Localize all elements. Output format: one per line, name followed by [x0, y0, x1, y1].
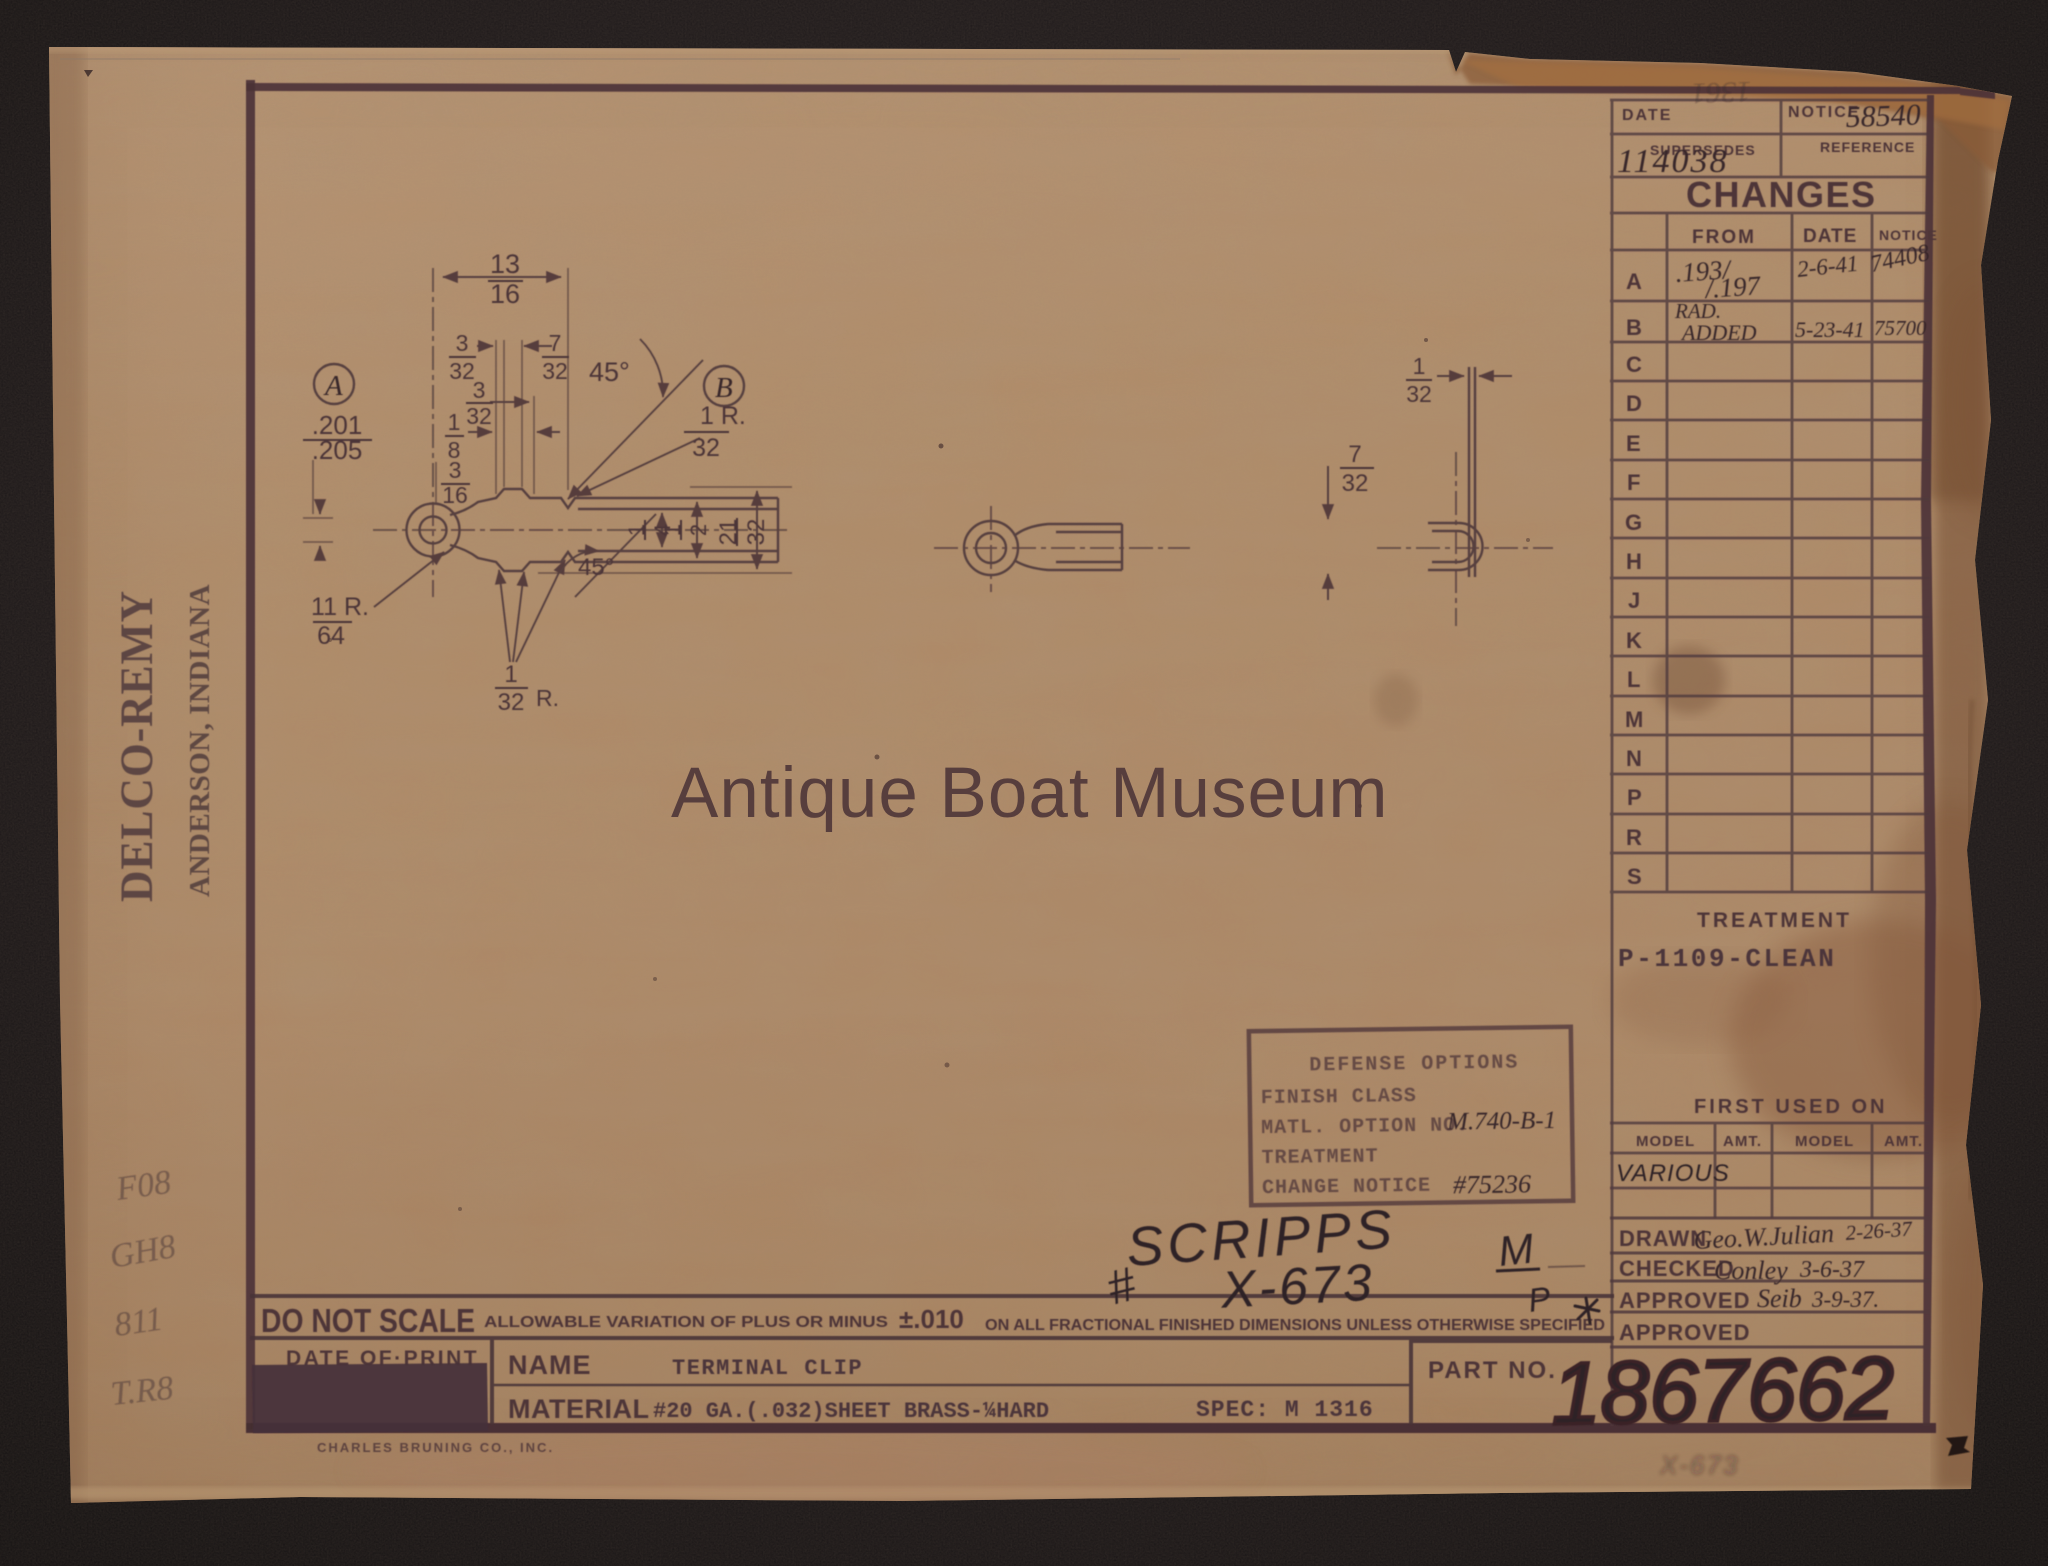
svg-text:ON ALL FRACTIONAL FINISHED DIM: ON ALL FRACTIONAL FINISHED DIMENSIONS UN… — [985, 1317, 1605, 1334]
svg-text:7: 7 — [1348, 441, 1361, 468]
svg-text:REFERENCE: REFERENCE — [1820, 139, 1915, 155]
svg-text:X-673: X-673 — [1219, 1254, 1377, 1320]
svg-text:2: 2 — [686, 524, 711, 536]
svg-text:ADDED: ADDED — [1680, 320, 1757, 345]
svg-text:DELCO-REMY: DELCO-REMY — [111, 590, 163, 902]
svg-text:3: 3 — [473, 377, 486, 403]
svg-text:58540: 58540 — [1845, 98, 1921, 134]
svg-text:ALLOWABLE VARIATION OF PLUS OR: ALLOWABLE VARIATION OF PLUS OR MINUS — [484, 1314, 888, 1331]
svg-text:DATE: DATE — [1803, 226, 1857, 247]
svg-text:J: J — [1628, 588, 1640, 613]
svg-text:32: 32 — [498, 689, 525, 716]
svg-text:2-26-37: 2-26-37 — [1845, 1216, 1914, 1245]
svg-text:32: 32 — [1342, 470, 1369, 497]
svg-text:M: M — [1625, 707, 1643, 732]
svg-text:MATERIAL: MATERIAL — [508, 1394, 649, 1424]
svg-text:FINISH CLASS: FINISH CLASS — [1261, 1085, 1417, 1110]
svg-text:CHANGES: CHANGES — [1686, 174, 1877, 215]
svg-text:1361: 1361 — [1690, 75, 1751, 110]
svg-text:32: 32 — [449, 358, 475, 384]
svg-text:R.: R. — [536, 685, 559, 711]
svg-text:1 R.: 1 R. — [700, 402, 746, 430]
svg-text:ANDERSON, INDIANA: ANDERSON, INDIANA — [184, 584, 216, 897]
svg-text:TERMINAL CLIP: TERMINAL CLIP — [672, 1356, 863, 1381]
svg-text:MATL. OPTION NO.: MATL. OPTION NO. — [1261, 1114, 1469, 1140]
svg-text:F08: F08 — [113, 1164, 173, 1208]
svg-text:MODEL: MODEL — [1795, 1133, 1854, 1150]
svg-text:X-673: X-673 — [1659, 1450, 1739, 1480]
svg-text:11 R.: 11 R. — [311, 593, 369, 621]
svg-text:32: 32 — [466, 403, 492, 429]
svg-text:TREATMENT: TREATMENT — [1697, 909, 1852, 932]
svg-text:AMT.: AMT. — [1723, 1133, 1762, 1150]
svg-text:5-23-41: 5-23-41 — [1795, 317, 1865, 342]
svg-text:1: 1 — [448, 409, 461, 435]
svg-text:P-1109-CLEAN: P-1109-CLEAN — [1618, 944, 1836, 974]
svg-text:A: A — [323, 370, 343, 402]
svg-text:3-6-37: 3-6-37 — [1799, 1257, 1865, 1283]
svg-text:Seib: Seib — [1757, 1284, 1802, 1313]
svg-text:75700: 75700 — [1874, 316, 1927, 340]
svg-text:L: L — [1627, 667, 1640, 692]
svg-text:DATE: DATE — [1622, 107, 1672, 124]
svg-text:Conley: Conley — [1714, 1256, 1788, 1285]
svg-text:45°: 45° — [589, 357, 630, 387]
svg-text:13: 13 — [490, 249, 520, 279]
svg-text:T.R8: T.R8 — [109, 1370, 175, 1413]
svg-text:S: S — [1627, 864, 1642, 889]
svg-text:G: G — [1625, 510, 1642, 535]
svg-text:64: 64 — [317, 622, 345, 650]
svg-text:B: B — [715, 372, 733, 404]
svg-text:FIRST USED ON: FIRST USED ON — [1694, 1096, 1887, 1118]
svg-text:#75236: #75236 — [1453, 1169, 1531, 1199]
svg-text:FROM: FROM — [1692, 227, 1756, 248]
svg-text:32: 32 — [1406, 381, 1432, 407]
svg-text:16: 16 — [442, 482, 468, 508]
svg-text:M: M — [1496, 1225, 1536, 1275]
svg-text:D: D — [1626, 391, 1642, 416]
svg-text:Antique Boat Museum: Antique Boat Museum — [671, 754, 1389, 833]
svg-text:32: 32 — [743, 519, 770, 546]
svg-text:H: H — [1626, 549, 1642, 574]
svg-text:P: P — [1627, 785, 1642, 810]
svg-text:DO NOT SCALE: DO NOT SCALE — [261, 1302, 475, 1339]
svg-text:F: F — [1627, 470, 1640, 495]
svg-text:CHANGE NOTICE: CHANGE NOTICE — [1262, 1175, 1431, 1200]
svg-text:1: 1 — [504, 661, 517, 688]
svg-text:MODEL: MODEL — [1636, 1133, 1695, 1150]
svg-text:CHARLES BRUNING CO., INC.: CHARLES BRUNING CO., INC. — [317, 1440, 554, 1455]
svg-text:811: 811 — [112, 1301, 165, 1344]
svg-text:C: C — [1626, 352, 1642, 377]
svg-text:E: E — [1626, 431, 1641, 456]
svg-text:3-9-37.: 3-9-37. — [1811, 1287, 1879, 1312]
svg-text:APPROVED: APPROVED — [1619, 1288, 1750, 1313]
svg-text:NAME: NAME — [508, 1350, 592, 1380]
svg-text:R: R — [1626, 825, 1642, 850]
svg-text:DEFENSE OPTIONS: DEFENSE OPTIONS — [1309, 1051, 1519, 1077]
svg-text:N: N — [1626, 746, 1642, 771]
svg-text:#20 GA.(.032)SHEET BRASS-¼HARD: #20 GA.(.032)SHEET BRASS-¼HARD — [653, 1399, 1049, 1424]
svg-text:NOTICE: NOTICE — [1879, 227, 1938, 243]
svg-text:16: 16 — [490, 279, 520, 309]
svg-text:AMT.: AMT. — [1884, 1133, 1923, 1150]
svg-text:±.010: ±.010 — [899, 1304, 964, 1334]
svg-text:7: 7 — [549, 330, 562, 356]
svg-text:3: 3 — [456, 330, 469, 356]
svg-text:32: 32 — [542, 358, 568, 384]
svg-text:VARIOUS: VARIOUS — [1616, 1160, 1730, 1187]
svg-text:32: 32 — [692, 434, 720, 462]
svg-text:3: 3 — [449, 457, 462, 483]
svg-text:TREATMENT: TREATMENT — [1261, 1145, 1378, 1170]
svg-text:PART NO.: PART NO. — [1428, 1357, 1557, 1384]
svg-text:45°: 45° — [578, 554, 614, 581]
svg-text:1: 1 — [1413, 353, 1426, 379]
svg-text:B: B — [1626, 315, 1642, 340]
svg-text:1867662: 1867662 — [1551, 1338, 1895, 1443]
svg-text:K: K — [1626, 628, 1642, 653]
svg-text:M.740-B-1: M.740-B-1 — [1446, 1107, 1556, 1136]
svg-text:SPEC: M 1316: SPEC: M 1316 — [1196, 1397, 1374, 1423]
svg-text:A: A — [1626, 269, 1642, 294]
